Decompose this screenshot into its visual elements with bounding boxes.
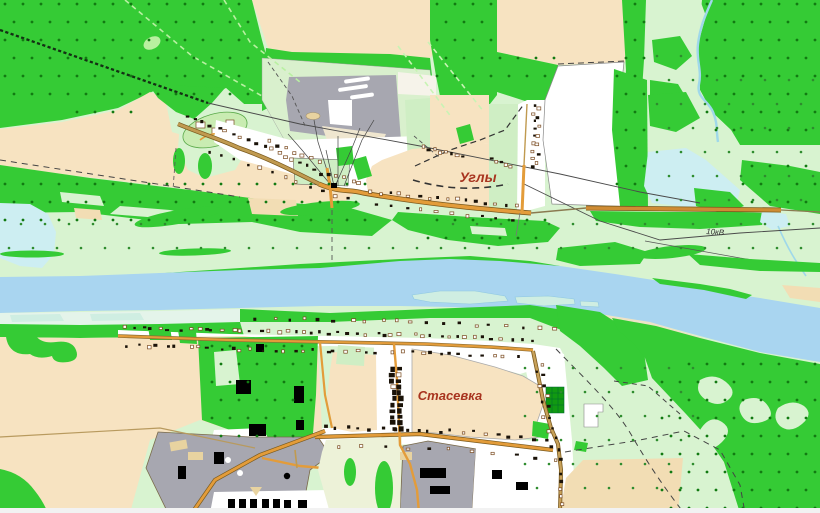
svg-text:10кВ: 10кВ — [706, 227, 725, 237]
svg-text:Углы: Углы — [459, 169, 496, 185]
svg-text:Стасевка: Стасевка — [418, 388, 482, 403]
